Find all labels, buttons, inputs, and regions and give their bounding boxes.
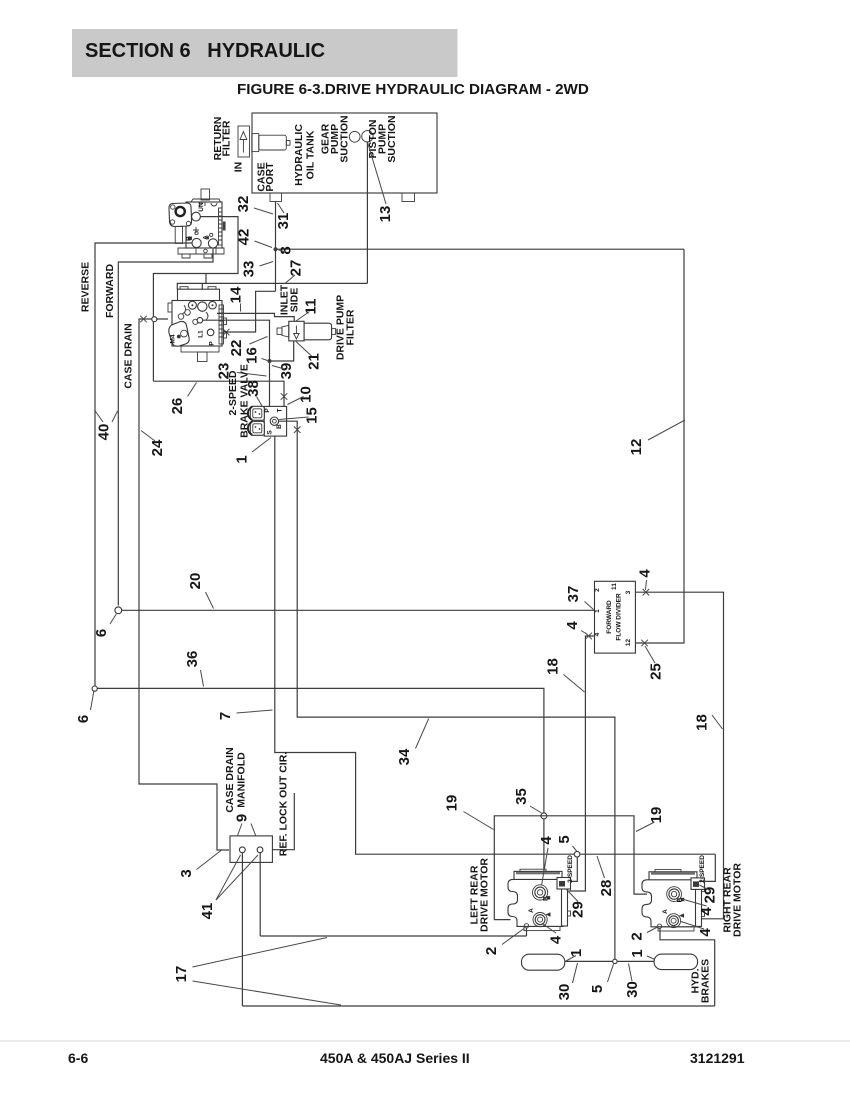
svg-text:4: 4 <box>538 836 555 845</box>
svg-text:11: 11 <box>611 583 618 590</box>
svg-text:S: S <box>267 430 274 435</box>
svg-text:1: 1 <box>568 949 585 957</box>
svg-text:29: 29 <box>570 901 587 918</box>
svg-text:6: 6 <box>75 715 92 723</box>
svg-text:5: 5 <box>556 835 573 843</box>
svg-text:B: B <box>677 897 684 902</box>
svg-text:UN: UN <box>198 202 205 212</box>
svg-text:FLOW DIVIDER: FLOW DIVIDER <box>616 593 623 641</box>
svg-text:2-SPEED: 2-SPEED <box>699 855 706 883</box>
svg-text:FILTER: FILTER <box>345 309 357 345</box>
svg-text:39: 39 <box>278 363 295 380</box>
svg-text:21: 21 <box>306 353 323 370</box>
svg-text:REF. LOCK OUT CIR.: REF. LOCK OUT CIR. <box>278 752 290 856</box>
svg-text:22: 22 <box>228 340 245 357</box>
svg-text:MANIFOLD: MANIFOLD <box>236 752 248 808</box>
svg-text:SUCTION: SUCTION <box>339 115 351 162</box>
svg-text:12: 12 <box>625 639 632 647</box>
svg-text:2-SPEED: 2-SPEED <box>567 855 574 883</box>
svg-text:16: 16 <box>244 347 261 364</box>
svg-text:L1: L1 <box>198 330 205 338</box>
svg-text:4: 4 <box>637 569 654 578</box>
svg-text:450A & 450AJ Series II: 450A & 450AJ Series II <box>320 1050 470 1066</box>
svg-text:36: 36 <box>184 651 201 668</box>
svg-text:9: 9 <box>234 814 251 822</box>
svg-text:4: 4 <box>698 907 715 916</box>
svg-text:FIGURE 6-3.DRIVE HYDRAULIC DIA: FIGURE 6-3.DRIVE HYDRAULIC DIAGRAM - 2WD <box>237 81 589 98</box>
svg-text:3: 3 <box>178 869 195 877</box>
svg-text:OIL TANK: OIL TANK <box>305 130 317 179</box>
svg-text:19: 19 <box>444 795 461 812</box>
svg-text:40: 40 <box>96 424 113 441</box>
svg-text:1: 1 <box>594 609 601 613</box>
svg-text:17: 17 <box>173 966 190 983</box>
svg-text:2: 2 <box>629 932 646 940</box>
svg-text:CASE DRAIN: CASE DRAIN <box>123 323 135 388</box>
svg-text:2: 2 <box>483 947 500 955</box>
svg-text:FILTER: FILTER <box>221 120 233 156</box>
svg-text:IN: IN <box>233 162 245 173</box>
svg-text:P: P <box>264 408 271 413</box>
svg-text:SIDE: SIDE <box>289 288 301 313</box>
svg-text:30: 30 <box>624 981 641 998</box>
svg-text:12: 12 <box>628 439 645 456</box>
svg-text:3: 3 <box>625 590 632 594</box>
svg-text:3121291: 3121291 <box>690 1050 745 1066</box>
svg-text:CASE DRAIN: CASE DRAIN <box>224 747 236 812</box>
svg-text:18: 18 <box>694 714 711 731</box>
svg-text:FORWARD: FORWARD <box>606 600 613 634</box>
svg-text:7: 7 <box>217 712 234 720</box>
svg-text:A: A <box>662 909 669 914</box>
svg-text:26: 26 <box>169 398 186 415</box>
svg-text:18: 18 <box>545 658 562 675</box>
svg-text:41: 41 <box>199 903 216 920</box>
svg-text:6: 6 <box>93 629 110 637</box>
svg-text:15: 15 <box>304 407 321 424</box>
svg-text:HYDRAULIC: HYDRAULIC <box>293 124 305 186</box>
svg-text:FORWARD: FORWARD <box>104 264 116 318</box>
svg-text:REVERSE: REVERSE <box>80 262 92 312</box>
svg-text:13: 13 <box>377 206 394 223</box>
svg-text:B: B <box>276 424 283 429</box>
svg-text:28: 28 <box>598 880 615 897</box>
svg-text:4: 4 <box>564 621 581 630</box>
svg-text:5: 5 <box>589 985 606 993</box>
svg-text:SECTION 6 HYDRAULIC: SECTION 6 HYDRAULIC <box>85 40 325 62</box>
svg-text:DRIVE MOTOR: DRIVE MOTOR <box>732 863 744 937</box>
svg-text:M4: M4 <box>170 334 177 343</box>
svg-text:SUCTION: SUCTION <box>386 115 398 162</box>
svg-text:11: 11 <box>303 299 320 315</box>
svg-text:29: 29 <box>702 887 719 904</box>
svg-text:32: 32 <box>235 196 252 213</box>
svg-text:33: 33 <box>241 261 258 278</box>
svg-text:2: 2 <box>594 588 601 592</box>
svg-text:DRIVE MOTOR: DRIVE MOTOR <box>479 858 491 932</box>
svg-text:20: 20 <box>187 573 204 590</box>
svg-text:PORT: PORT <box>264 162 276 192</box>
svg-text:6-6: 6-6 <box>68 1050 88 1066</box>
svg-text:4: 4 <box>697 928 714 937</box>
svg-text:19: 19 <box>648 807 665 824</box>
svg-text:BRAKES: BRAKES <box>700 959 712 1003</box>
svg-text:27: 27 <box>288 260 305 277</box>
svg-text:30: 30 <box>556 984 573 1001</box>
svg-text:38: 38 <box>245 380 262 397</box>
svg-text:P: P <box>209 341 216 346</box>
svg-text:35: 35 <box>513 788 530 805</box>
svg-text:1: 1 <box>234 455 251 463</box>
svg-text:25: 25 <box>648 663 665 680</box>
svg-text:T: T <box>277 408 284 412</box>
svg-text:34: 34 <box>396 748 413 765</box>
svg-text:31: 31 <box>275 213 292 230</box>
svg-text:B: B <box>186 236 193 241</box>
svg-text:A: A <box>203 235 210 240</box>
svg-text:4: 4 <box>548 935 565 944</box>
svg-text:4: 4 <box>594 632 601 636</box>
svg-text:24: 24 <box>149 439 166 456</box>
svg-text:B: B <box>543 896 550 901</box>
svg-text:1: 1 <box>629 949 646 957</box>
svg-text:10: 10 <box>298 386 315 403</box>
svg-text:14: 14 <box>228 286 245 303</box>
svg-text:37: 37 <box>565 586 582 603</box>
svg-text:BRAKE VALVE: BRAKE VALVE <box>239 364 251 438</box>
svg-text:A: A <box>528 908 535 913</box>
svg-text:2-SPEED: 2-SPEED <box>227 370 239 415</box>
